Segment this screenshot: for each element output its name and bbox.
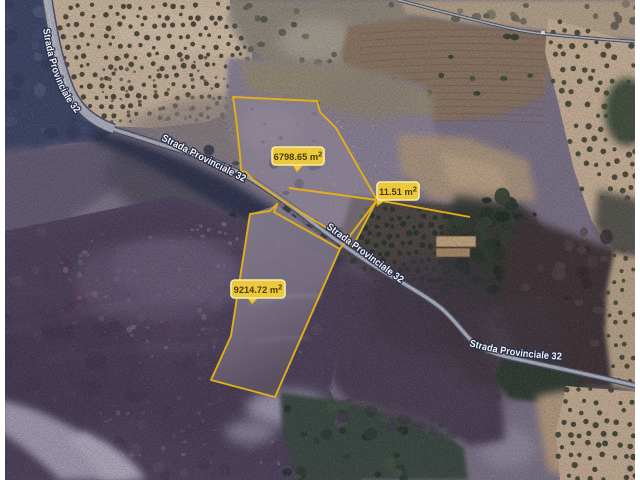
svg-text:6798.65 m2: 6798.65 m2 [274,150,323,163]
svg-text:11.51 m2: 11.51 m2 [379,185,417,198]
svg-text:9214.72 m2: 9214.72 m2 [234,283,283,296]
